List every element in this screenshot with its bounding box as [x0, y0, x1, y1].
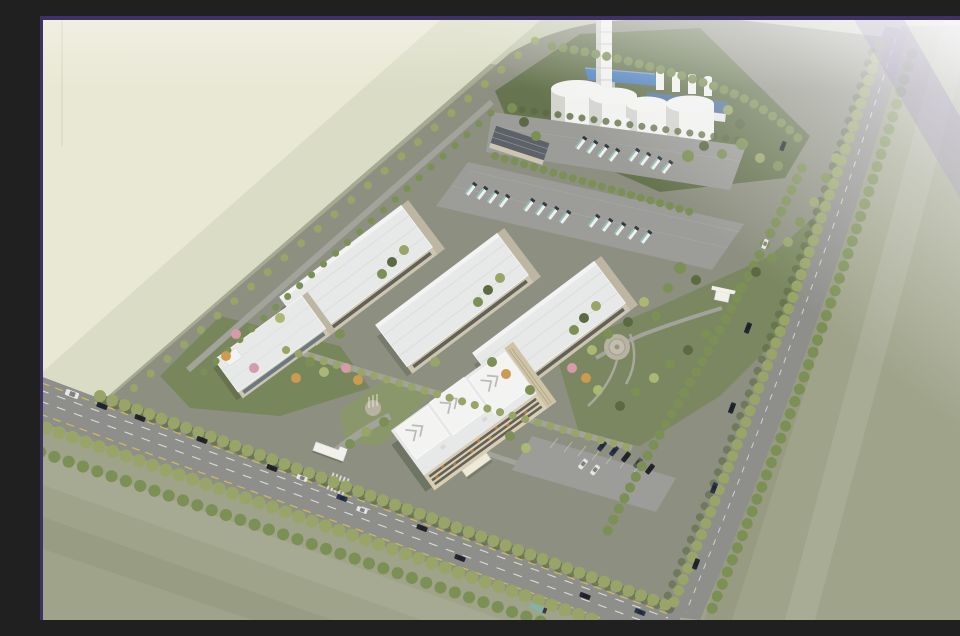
tree: [387, 257, 397, 267]
tree: [335, 329, 345, 339]
pink-tree: [249, 363, 259, 373]
tree: [275, 313, 285, 323]
tree: [379, 417, 389, 427]
tree: [345, 439, 355, 449]
tree: [430, 357, 440, 367]
pink-tree: [341, 363, 351, 373]
rendering-canvas: [40, 16, 960, 620]
aerial-rendering: [40, 16, 960, 620]
tree: [319, 367, 329, 377]
tree: [399, 245, 409, 255]
orange-tree: [221, 351, 231, 361]
border-top: [40, 16, 960, 20]
tree: [377, 269, 387, 279]
orange-tree: [291, 373, 301, 383]
horizon-fade: [40, 20, 960, 90]
pink-tree: [231, 329, 241, 339]
tree: [361, 427, 371, 437]
orange-tree: [353, 375, 363, 385]
tree: [305, 357, 315, 367]
border-left: [40, 16, 43, 620]
